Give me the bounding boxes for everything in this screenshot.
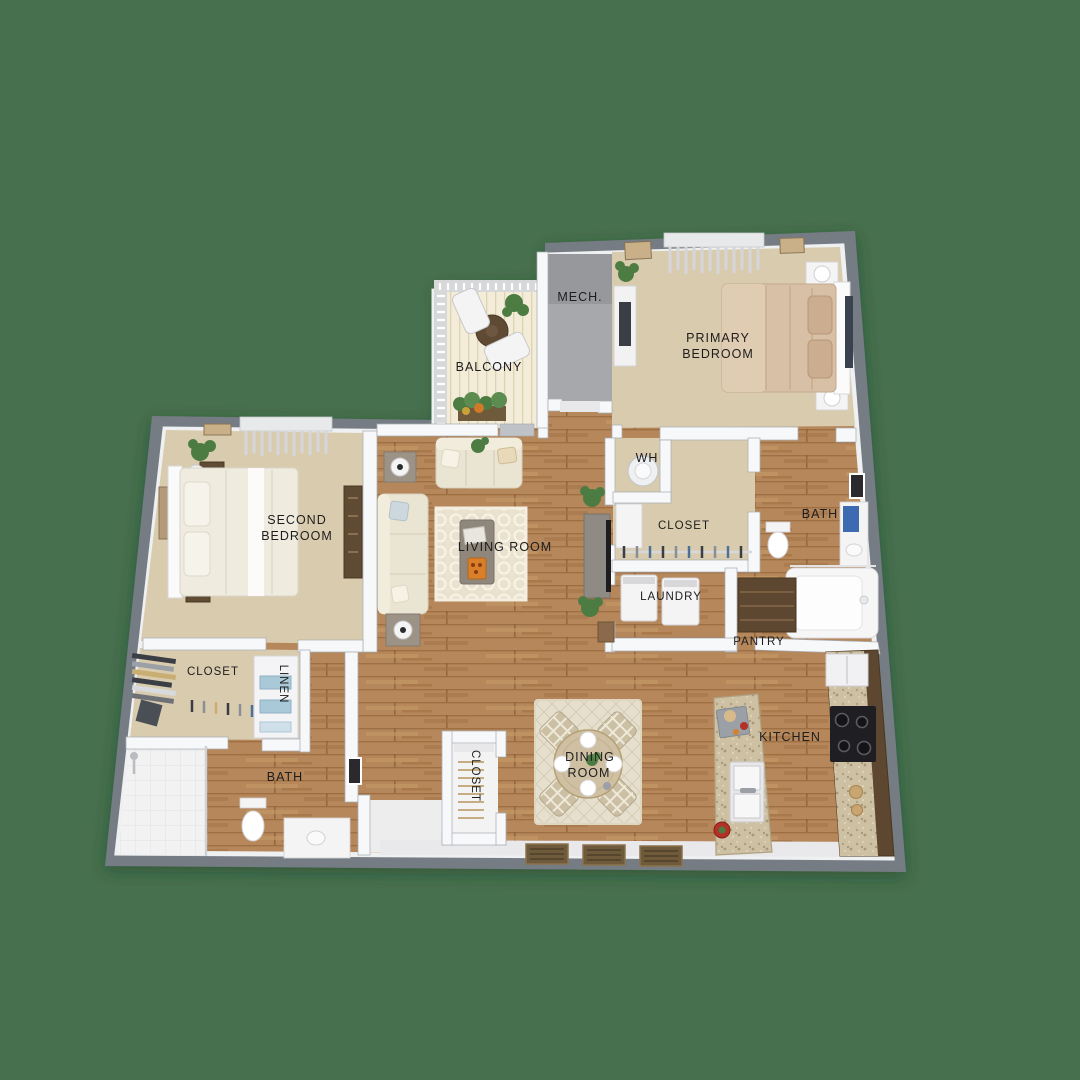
primary-art-frame-2 xyxy=(780,238,805,254)
label-second-bath: BATH xyxy=(267,770,303,784)
label-pantry: PANTRY xyxy=(733,636,785,648)
linen-closet xyxy=(254,656,298,738)
second-toilet-bowl xyxy=(242,811,264,841)
primary-pillow-1 xyxy=(808,296,832,334)
label-dining-room-1: DINING xyxy=(565,750,615,764)
second-pillow-1 xyxy=(184,482,210,526)
primary-towel xyxy=(843,506,859,532)
label-primary-bedroom-2: BEDROOM xyxy=(682,347,754,361)
doormat-1 xyxy=(526,844,568,864)
loveseat-pillow-1 xyxy=(441,449,461,469)
label-primary-bedroom-1: PRIMARY xyxy=(686,331,750,345)
balcony-table-top xyxy=(486,325,498,337)
loveseat-pillow-2 xyxy=(497,447,517,464)
balcony-door-mat xyxy=(500,424,534,436)
washer-panel xyxy=(623,577,655,584)
sofa-pillow-1 xyxy=(389,501,409,521)
label-balcony: BALCONY xyxy=(456,360,523,374)
hall-basket xyxy=(598,622,614,642)
mech-threshold xyxy=(560,401,600,412)
label-primary-bath: BATH xyxy=(802,507,838,521)
doormat-2 xyxy=(583,845,625,865)
primary-tub-basin xyxy=(794,576,862,630)
primary-sink xyxy=(846,544,862,556)
second-sink xyxy=(307,831,325,845)
floor-plan: MECH. BALCONY PRIMARY BEDROOM SECOND BED… xyxy=(0,0,1080,1080)
sofa-pillow-2 xyxy=(391,585,409,603)
label-wh: WH xyxy=(636,451,659,465)
closet-shelf xyxy=(616,504,642,548)
entry-doormats xyxy=(526,844,682,866)
plate-n xyxy=(580,732,596,748)
tomato-2 xyxy=(733,729,739,735)
pot-herbs xyxy=(719,827,726,834)
primary-toilet-bowl xyxy=(768,532,788,558)
label-primary-closet: CLOSET xyxy=(658,520,710,532)
primary-wall-tv xyxy=(845,296,853,368)
pantry-shelves xyxy=(738,578,796,632)
cooktop xyxy=(830,706,876,762)
counter-bowl-2 xyxy=(852,805,863,816)
plate-s xyxy=(580,780,596,796)
sink-basin-2 xyxy=(734,794,760,818)
second-art-frame xyxy=(204,424,231,435)
label-linen: LINEN xyxy=(277,665,289,704)
shower-head xyxy=(130,752,138,760)
second-dresser xyxy=(344,486,362,578)
label-kitchen: KITCHEN xyxy=(759,730,821,744)
balcony-rail-top xyxy=(434,280,547,293)
label-second-bedroom-2: BEDROOM xyxy=(261,529,333,543)
doormat-3 xyxy=(640,846,682,866)
label-laundry: LAUNDRY xyxy=(640,591,702,603)
dryer-panel xyxy=(664,580,697,587)
second-bath-art xyxy=(348,758,361,784)
primary-art-frame-1 xyxy=(625,241,652,259)
primary-toilet-tank xyxy=(766,522,790,532)
label-hall-closet: CLOSET xyxy=(469,750,481,802)
tv-screen xyxy=(606,520,611,592)
shower-floor xyxy=(118,746,206,856)
second-pillow-2 xyxy=(184,532,210,576)
linen-towels-3 xyxy=(260,722,291,732)
coffee-table-tray xyxy=(468,558,486,579)
primary-pillow-2 xyxy=(808,340,832,378)
sink-faucet xyxy=(740,788,756,793)
tomato-1 xyxy=(740,722,748,730)
label-second-bedroom-1: SECOND xyxy=(267,513,326,527)
sofa-back xyxy=(378,494,390,614)
primary-lamp-1 xyxy=(814,266,830,282)
sink-basin-1 xyxy=(734,766,760,790)
label-mech: MECH. xyxy=(557,290,602,304)
second-bedroom-window xyxy=(240,417,332,456)
bread xyxy=(724,710,736,722)
balcony xyxy=(434,280,547,436)
label-living-room: LIVING ROOM xyxy=(458,540,552,554)
primary-bath-art xyxy=(850,474,864,498)
counter-bowl-1 xyxy=(850,786,863,799)
label-second-closet: CLOSET xyxy=(187,666,239,678)
tub-fixture xyxy=(860,596,868,604)
primary-dresser-tv xyxy=(619,302,631,346)
second-toilet-tank xyxy=(240,798,266,808)
label-dining-room-2: ROOM xyxy=(568,766,611,780)
